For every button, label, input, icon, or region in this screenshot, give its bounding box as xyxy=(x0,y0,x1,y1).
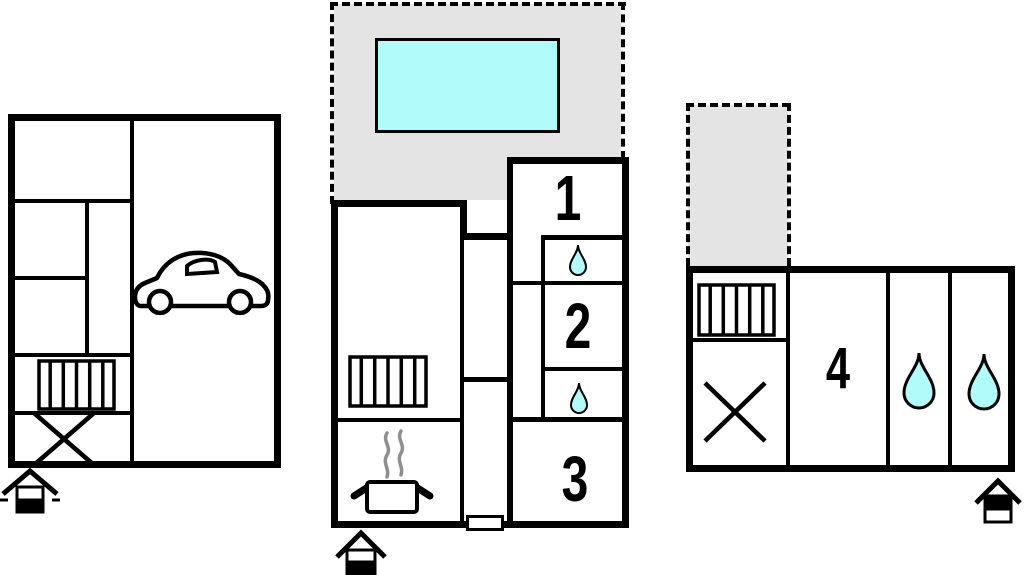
cross-mark-icon xyxy=(32,411,96,467)
terrace xyxy=(688,105,788,266)
wall-segment xyxy=(507,157,513,528)
stove-icon xyxy=(345,425,437,517)
cross-mark-icon xyxy=(703,381,767,443)
pool xyxy=(375,38,560,133)
wall-segment xyxy=(541,237,545,420)
wall-segment xyxy=(507,417,622,422)
wall-segment xyxy=(948,273,952,465)
wall-segment xyxy=(886,273,890,465)
terrace-boundary xyxy=(787,103,791,266)
terrace-boundary xyxy=(330,2,626,6)
wall-segment xyxy=(338,418,460,422)
room-1-label: 1 xyxy=(527,166,610,230)
room-2-label: 2 xyxy=(548,294,608,358)
staircase-icon xyxy=(37,359,116,411)
terrace-boundary xyxy=(686,103,790,107)
terrace-boundary xyxy=(330,2,334,204)
entrance-arrow-icon xyxy=(0,468,60,514)
room-3-label: 3 xyxy=(534,447,617,511)
terrace-boundary xyxy=(686,103,690,266)
wall-segment xyxy=(15,199,130,203)
wall-segment xyxy=(15,353,130,357)
room-4-label: 4 xyxy=(802,340,874,398)
door xyxy=(466,515,504,531)
entrance-arrow-icon xyxy=(334,529,388,575)
wall-segment xyxy=(460,377,511,382)
wall-segment xyxy=(331,200,338,528)
bath-droplet-icon xyxy=(568,244,588,278)
wall-segment xyxy=(541,235,622,240)
bath-droplet-icon xyxy=(901,351,937,411)
wall-segment xyxy=(622,157,629,528)
wall-segment xyxy=(15,276,87,280)
terrace-boundary xyxy=(621,2,625,159)
wall-segment xyxy=(693,338,788,342)
entrance-arrow-icon xyxy=(973,474,1023,524)
wall-segment xyxy=(460,233,513,240)
bath-droplet-icon xyxy=(569,382,589,416)
wall-segment xyxy=(786,273,790,465)
staircase-icon xyxy=(348,355,428,408)
car-icon xyxy=(133,249,273,315)
wall-segment xyxy=(331,200,467,207)
wall-segment xyxy=(545,367,622,371)
bath-droplet-icon xyxy=(966,352,1002,412)
staircase-icon xyxy=(697,283,776,337)
wall-segment xyxy=(507,281,622,285)
wall-segment xyxy=(85,199,89,357)
floor-plan: 1 2 3 xyxy=(0,0,1024,575)
